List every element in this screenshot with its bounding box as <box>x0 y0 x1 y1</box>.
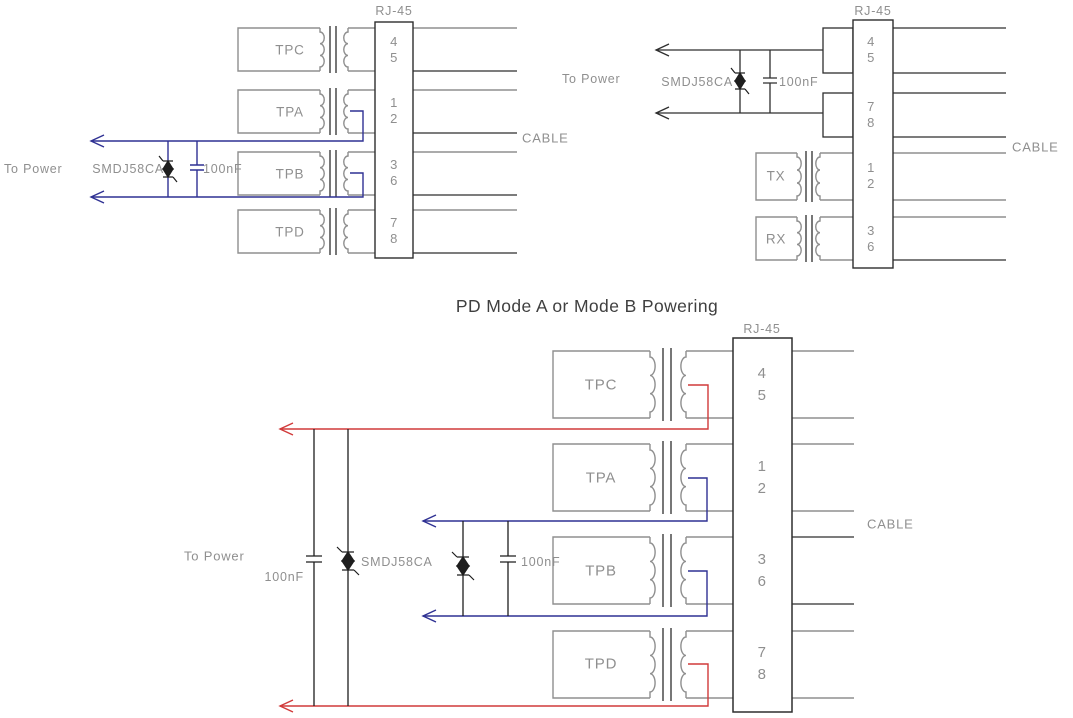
b-transformer-cores <box>663 348 671 701</box>
b-red-power-wires <box>280 385 708 712</box>
tl-rj45-pin-pair-78: 7 8 <box>390 215 398 247</box>
pin-number: 4 <box>758 363 767 385</box>
tr-rj45-pin-pair-45: 4 5 <box>867 34 875 66</box>
tl-to-power-label: To Power <box>4 162 63 176</box>
pin-number: 1 <box>867 160 875 176</box>
pin-number: 6 <box>867 239 875 255</box>
pin-number: 8 <box>390 231 398 247</box>
tr-rj45-label: RJ-45 <box>854 4 891 18</box>
tl-rj45-pin-pair-12: 1 2 <box>390 95 398 127</box>
pin-number: 7 <box>758 642 767 664</box>
pin-number: 4 <box>390 34 398 50</box>
tl-block-label-tpa: TPA <box>276 105 304 120</box>
tl-cable-lines <box>413 28 517 253</box>
tl-cap-label: 100nF <box>203 162 242 176</box>
b-cable-lines <box>792 351 854 698</box>
b-rj45-pin-pair-78: 7 8 <box>758 642 767 686</box>
tl-cable-label: CABLE <box>522 131 569 146</box>
tl-rj45-pin-pair-36: 3 6 <box>390 157 398 189</box>
pin-number: 2 <box>758 478 767 500</box>
tl-rj45-label: RJ-45 <box>375 4 412 18</box>
pin-number: 8 <box>867 115 875 131</box>
pin-number: 3 <box>390 157 398 173</box>
schematic-wiring <box>0 0 1073 718</box>
tr-rj45-pin-pair-36: 3 6 <box>867 223 875 255</box>
tr-rj45-pin-pair-78: 7 8 <box>867 99 875 131</box>
tl-block-label-tpc: TPC <box>275 43 304 58</box>
pin-number: 7 <box>390 215 398 231</box>
tl-block-label-tpd: TPD <box>275 225 304 240</box>
pin-number: 3 <box>758 549 767 571</box>
b-block-label-tpc: TPC <box>585 377 617 394</box>
b-block-label-tpd: TPD <box>585 656 617 673</box>
tr-transformer-cores <box>806 151 812 262</box>
tl-rj45-pin-pair-45: 4 5 <box>390 34 398 66</box>
b-cap-left-label: 100nF <box>265 570 304 584</box>
tr-cable-label: CABLE <box>1012 140 1059 155</box>
pin-number: 5 <box>867 50 875 66</box>
pin-number: 4 <box>867 34 875 50</box>
b-cable-label: CABLE <box>867 517 914 532</box>
bottom-circuit-title: PD Mode A or Mode B Powering <box>456 296 718 317</box>
tr-tvs-diode <box>731 68 749 94</box>
pin-number: 6 <box>758 571 767 593</box>
tl-tvs-label: SMDJ58CA <box>92 162 164 176</box>
pin-number: 8 <box>758 664 767 686</box>
b-tvs-label: SMDJ58CA <box>361 555 433 569</box>
b-rj45-pin-pair-12: 1 2 <box>758 456 767 500</box>
tr-rj45-pin-pair-12: 1 2 <box>867 160 875 192</box>
b-blocks-and-transformers <box>553 351 733 698</box>
tr-rj45-connector <box>823 20 893 268</box>
pin-number: 2 <box>867 176 875 192</box>
tr-to-power-label: To Power <box>562 72 621 86</box>
pin-number: 5 <box>758 385 767 407</box>
pin-number: 2 <box>390 111 398 127</box>
tr-block-label-tx: TX <box>767 169 786 184</box>
pin-number: 1 <box>758 456 767 478</box>
schematic-canvas: RJ-45 TPC TPA TPB TPD 4 5 1 2 3 6 7 8 To… <box>0 0 1073 718</box>
pin-number: 5 <box>390 50 398 66</box>
tr-cable-lines <box>893 28 1006 260</box>
pin-number: 1 <box>390 95 398 111</box>
b-rj45-pin-pair-36: 3 6 <box>758 549 767 593</box>
pin-number: 7 <box>867 99 875 115</box>
b-tvs-diode-left <box>337 547 359 575</box>
tl-block-label-tpb: TPB <box>276 167 305 182</box>
b-block-label-tpa: TPA <box>586 470 616 487</box>
b-to-power-label: To Power <box>184 549 245 564</box>
tr-cap-label: 100nF <box>779 75 818 89</box>
tr-tvs-label: SMDJ58CA <box>661 75 733 89</box>
b-block-label-tpb: TPB <box>585 563 617 580</box>
tr-block-label-rx: RX <box>766 232 786 247</box>
b-tvs-diode-right <box>452 552 474 580</box>
b-rj45-label: RJ-45 <box>743 322 780 336</box>
pin-number: 6 <box>390 173 398 189</box>
b-blue-power-wires <box>423 478 707 622</box>
pin-number: 3 <box>867 223 875 239</box>
b-cap-right-label: 100nF <box>521 555 560 569</box>
b-rj45-pin-pair-45: 4 5 <box>758 363 767 407</box>
